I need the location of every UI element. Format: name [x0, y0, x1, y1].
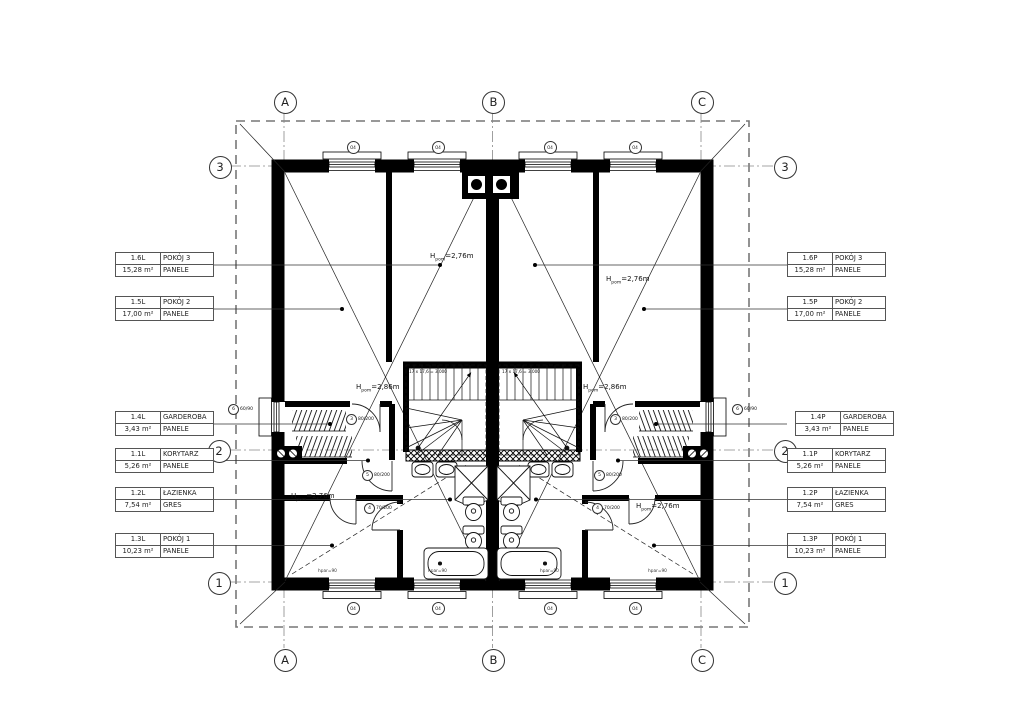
- axis-3-right: 3: [774, 156, 797, 179]
- room-floor: PANELE: [833, 460, 885, 472]
- room-floor: GRES: [161, 499, 213, 511]
- axis-c-top: C: [691, 91, 714, 114]
- room-floor: PANELE: [161, 264, 213, 276]
- room-name: POKÓJ 3: [161, 253, 213, 264]
- room-name: GARDEROBA: [841, 412, 893, 423]
- door-number: 4: [592, 503, 603, 514]
- vent-duct: [272, 446, 302, 461]
- room-floor: PANELE: [161, 545, 213, 557]
- stair-formula: 17 x 17,6 = 3,000: [409, 369, 447, 374]
- parapet-note: hpar=90: [318, 569, 337, 574]
- room-code: 1.2L: [116, 488, 161, 499]
- room-label-table: 1.4L GARDEROBA 3,43 m² PANELE: [115, 411, 214, 436]
- window-number: 6: [228, 404, 239, 415]
- window-marker: O4: [544, 141, 557, 154]
- room-area: 3,43 m²: [116, 423, 161, 435]
- parapet-note: hpar=90: [428, 569, 447, 574]
- room-label-table: 1.2L ŁAZIENKA 7,54 m² GRES: [115, 487, 214, 512]
- room-label-table: 1.3L POKÓJ 1 10,23 m² PANELE: [115, 533, 214, 558]
- room-area: 15,28 m²: [116, 264, 161, 276]
- door-number: 5: [362, 470, 373, 481]
- room-floor: PANELE: [833, 308, 885, 320]
- room-code: 1.1P: [788, 449, 833, 460]
- room-name: GARDEROBA: [161, 412, 213, 423]
- room-label-table: 1.3P POKÓJ 1 10,23 m² PANELE: [787, 533, 886, 558]
- door-number: 3: [610, 414, 621, 425]
- staircase: [406, 365, 486, 455]
- room-area: 10,23 m²: [788, 545, 833, 557]
- window-marker: O4: [544, 602, 557, 615]
- room-label-table: 1.6P POKÓJ 3 15,28 m² PANELE: [787, 252, 886, 277]
- window-marker: O4: [347, 141, 360, 154]
- height-annotation: Hpom=2,76m: [636, 502, 680, 512]
- room-area: 15,28 m²: [788, 264, 833, 276]
- room-label-table: 1.1P KORYTARZ 5,26 m² PANELE: [787, 448, 886, 473]
- room-label-table: 1.2P ŁAZIENKA 7,54 m² GRES: [787, 487, 886, 512]
- room-label-table: 1.5P POKÓJ 2 17,00 m² PANELE: [787, 296, 886, 321]
- room-name: ŁAZIENKA: [833, 488, 885, 499]
- room-name: KORYTARZ: [161, 449, 213, 460]
- room-code: 1.4P: [796, 412, 841, 423]
- axis-1-left: 1: [208, 572, 231, 595]
- room-area: 5,26 m²: [116, 460, 161, 472]
- window-marker: O4: [629, 141, 642, 154]
- room-area: 7,54 m²: [116, 499, 161, 511]
- room-name: KORYTARZ: [833, 449, 885, 460]
- door-number: 4: [364, 503, 375, 514]
- room-label-table: 1.4P GARDEROBA 3,43 m² PANELE: [795, 411, 894, 436]
- room-code: 1.2P: [788, 488, 833, 499]
- room-area: 10,23 m²: [116, 545, 161, 557]
- room-area: 17,00 m²: [116, 308, 161, 320]
- side-window-tag: 6 60/90: [228, 404, 253, 415]
- door-number: 3: [346, 414, 357, 425]
- room-code: 1.5L: [116, 297, 161, 308]
- room-code: 1.6L: [116, 253, 161, 264]
- stair-formula: 17 x 17,6 = 3,000: [502, 369, 540, 374]
- room-name: POKÓJ 2: [833, 297, 885, 308]
- room-name: POKÓJ 2: [161, 297, 213, 308]
- door-tag: 3 80/200: [610, 414, 638, 425]
- bathroom-fixtures: [412, 462, 488, 579]
- room-code: 1.3P: [788, 534, 833, 545]
- room-code: 1.3L: [116, 534, 161, 545]
- height-annotation: Hpom=2,76m: [430, 252, 474, 262]
- height-annotation: Hpom=2,86m: [356, 383, 400, 393]
- axis-1-right: 1: [774, 572, 797, 595]
- floor-plan-page: A B C A B C 3 2 1 3 2 1 1.6L POKÓJ 3 15,…: [0, 0, 1024, 725]
- room-name: POKÓJ 1: [833, 534, 885, 545]
- room-code: 1.1L: [116, 449, 161, 460]
- door-number: 5: [594, 470, 605, 481]
- room-area: 7,54 m²: [788, 499, 833, 511]
- height-annotation: Hpom=2,76m: [291, 492, 335, 502]
- room-floor: GRES: [833, 499, 885, 511]
- door-tag: 5 80/200: [362, 470, 390, 481]
- window-side: [259, 398, 285, 436]
- main-walls: [278, 160, 707, 590]
- room-floor: PANELE: [161, 423, 213, 435]
- window-marker: O4: [629, 602, 642, 615]
- room-floor: PANELE: [833, 545, 885, 557]
- axis-c-bottom: C: [691, 649, 714, 672]
- door-tag: 4 70/200: [592, 503, 620, 514]
- height-annotation: Hpom=2,86m: [583, 383, 627, 393]
- floor-plan-canvas: [0, 0, 1024, 725]
- room-area: 5,26 m²: [788, 460, 833, 472]
- axis-a-bottom: A: [274, 649, 297, 672]
- room-floor: PANELE: [833, 264, 885, 276]
- door-tag: 3 80/200: [346, 414, 374, 425]
- window-marker: O4: [432, 602, 445, 615]
- room-label-table: 1.5L POKÓJ 2 17,00 m² PANELE: [115, 296, 214, 321]
- room-label-table: 1.6L POKÓJ 3 15,28 m² PANELE: [115, 252, 214, 277]
- room-name: ŁAZIENKA: [161, 488, 213, 499]
- door-tag: 4 70/200: [364, 503, 392, 514]
- room-area: 3,43 m²: [796, 423, 841, 435]
- parapet-note: hpar=90: [648, 569, 667, 574]
- parapet-note: hpar=90: [540, 569, 559, 574]
- room-code: 1.5P: [788, 297, 833, 308]
- door-tag: 5 80/200: [594, 470, 622, 481]
- height-annotation: Hpom=2,76m: [606, 275, 650, 285]
- room-name: POKÓJ 3: [833, 253, 885, 264]
- axis-3-left: 3: [209, 156, 232, 179]
- axis-a-top: A: [274, 91, 297, 114]
- axis-b-bottom: B: [482, 649, 505, 672]
- room-floor: PANELE: [161, 308, 213, 320]
- room-label-table: 1.1L KORYTARZ 5,26 m² PANELE: [115, 448, 214, 473]
- room-name: POKÓJ 1: [161, 534, 213, 545]
- room-code: 1.6P: [788, 253, 833, 264]
- side-window-tag: 6 60/90: [732, 404, 757, 415]
- room-floor: PANELE: [841, 423, 893, 435]
- axis-b-top: B: [482, 91, 505, 114]
- room-code: 1.4L: [116, 412, 161, 423]
- window-marker: O4: [432, 141, 445, 154]
- window-number: 6: [732, 404, 743, 415]
- chimney-block: [462, 166, 519, 199]
- room-area: 17,00 m²: [788, 308, 833, 320]
- window-marker: O4: [347, 602, 360, 615]
- room-floor: PANELE: [161, 460, 213, 472]
